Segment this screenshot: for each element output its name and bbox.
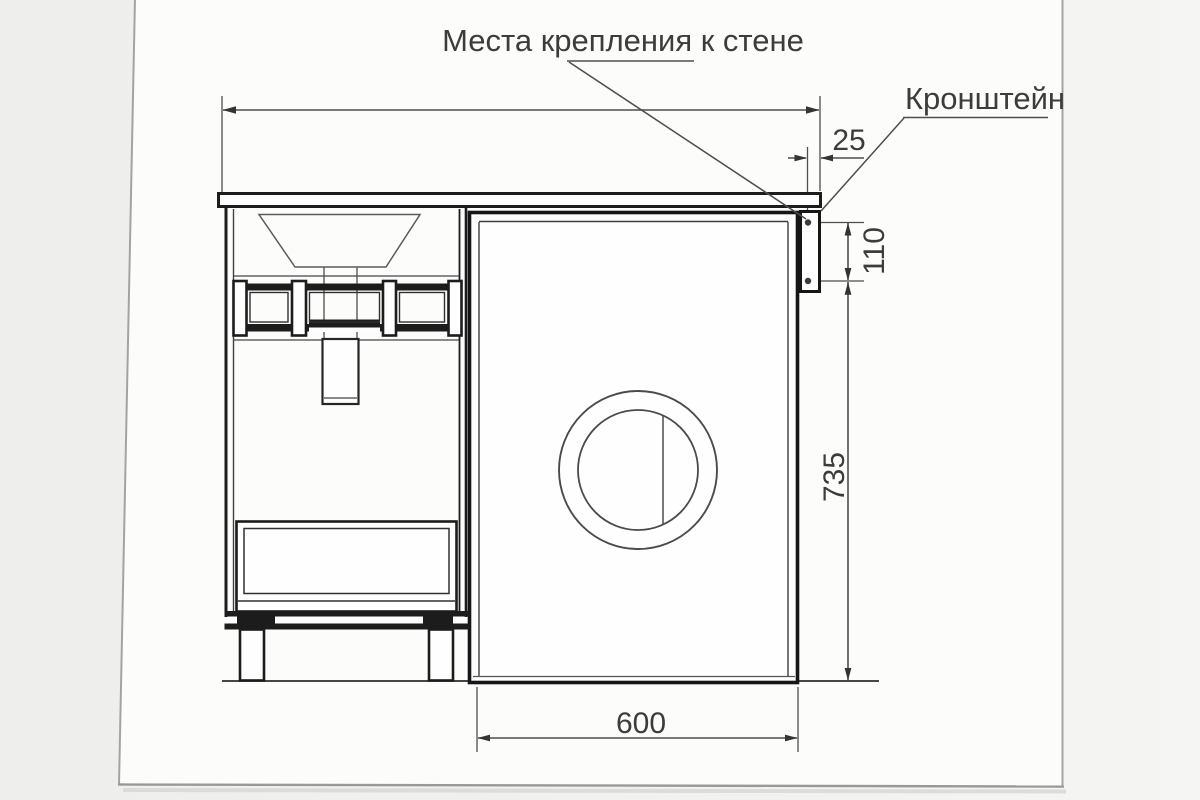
screw-hole-top [805, 219, 811, 225]
wall-mount-label: Места крепления к стене [442, 23, 804, 58]
dimension-25-label: 25 [832, 124, 865, 157]
rail-post [383, 281, 396, 336]
installation-diagram: 25 110 735 600 [0, 0, 1200, 800]
leg-left [240, 630, 264, 681]
leg-mount-right [423, 616, 453, 625]
dimension-600-label: 600 [616, 707, 666, 740]
screw-hole-bottom [805, 278, 811, 284]
drawer-front [237, 522, 457, 612]
page-shadow [123, 790, 1066, 792]
rail-post [292, 281, 306, 336]
drum-outer-circle [559, 391, 717, 549]
dimension-110-label: 110 [858, 227, 891, 275]
technical-drawing-page: 25 110 735 600 [0, 0, 1200, 800]
drawer [237, 522, 457, 612]
leg-right [429, 630, 453, 681]
rail-post [449, 281, 462, 336]
dimension-735-label: 735 [818, 452, 851, 502]
drain-pipe-lower [323, 339, 359, 404]
leg-mount-left [237, 616, 275, 625]
rail-post [234, 281, 247, 336]
countertop [219, 194, 821, 207]
drum-door [559, 391, 717, 549]
bracket-label: Кронштейн [905, 81, 1065, 116]
